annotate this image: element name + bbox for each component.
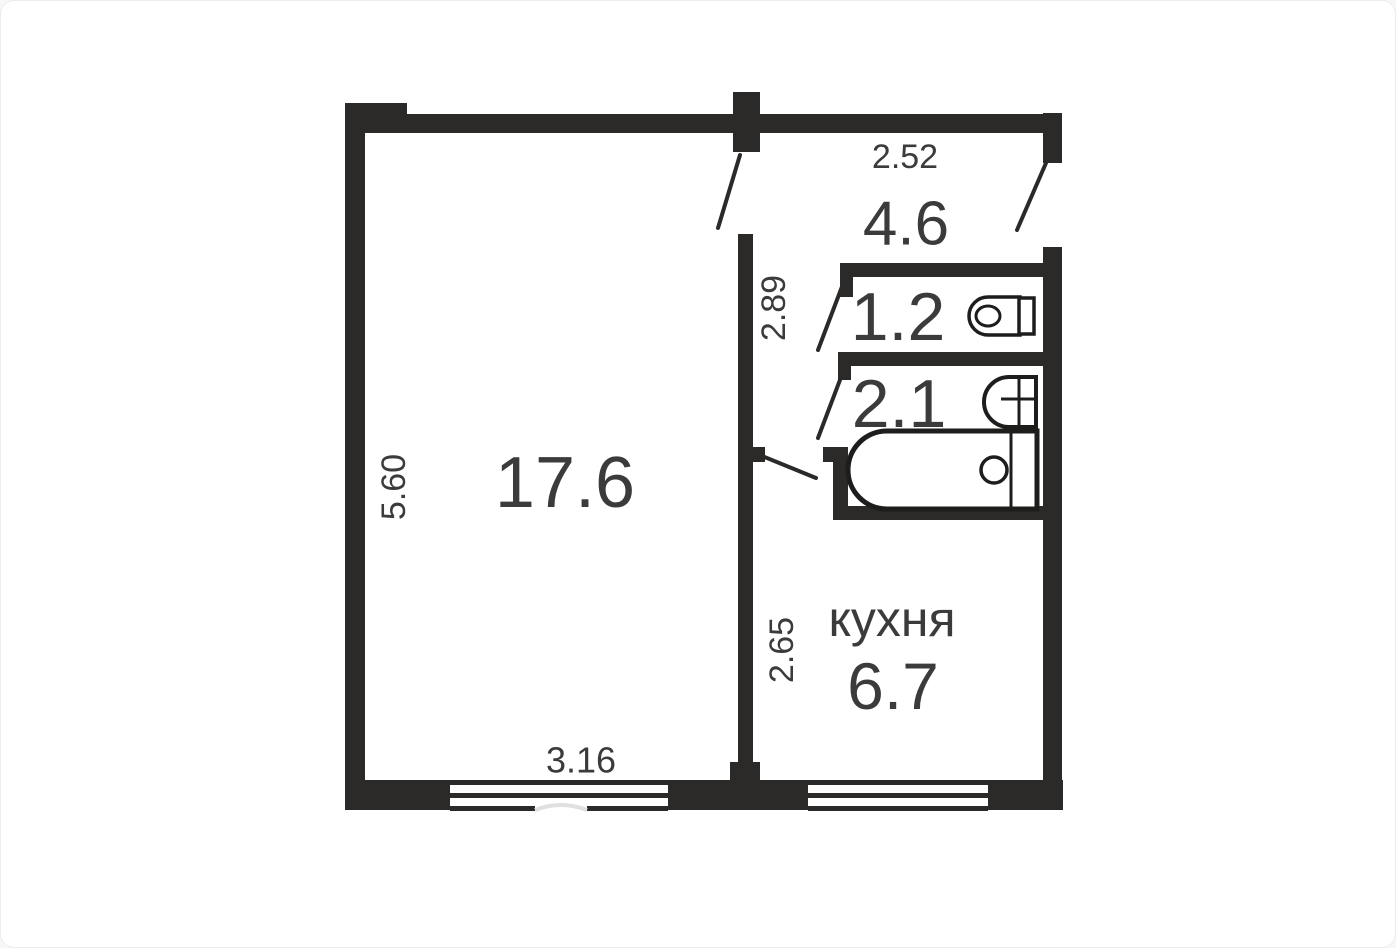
door-swing-icon-living	[718, 155, 740, 228]
window-line-inner-right	[587, 806, 668, 811]
wc-area-label: 1.2	[851, 279, 946, 355]
door-swing-icon-wc	[818, 284, 843, 350]
living-room-area-label: 17.6	[495, 443, 635, 523]
door-swing-icon-entrance	[1017, 163, 1046, 230]
sink-icon	[984, 377, 1036, 427]
window-living-room	[450, 780, 668, 811]
wall-right-above-entrance	[1043, 113, 1062, 163]
wall-wc-top	[840, 263, 1043, 277]
toilet-icon	[969, 297, 1034, 335]
wall-middle-top-stub	[733, 92, 760, 152]
dim-hall-depth: 2.89	[755, 275, 793, 341]
window-line-middle	[808, 793, 988, 798]
window-line-outer	[808, 780, 988, 785]
sink-basin	[984, 377, 1036, 427]
bathtub-drain	[981, 457, 1007, 483]
wall-right	[1043, 247, 1062, 810]
window-line-inner-left	[450, 806, 535, 811]
door-swing-icon-kitchen	[762, 456, 816, 478]
dim-living-depth: 5.60	[375, 454, 413, 520]
hall-area-label: 4.6	[863, 190, 949, 259]
wall-left	[345, 103, 365, 810]
kitchen-area-label: 6.7	[847, 649, 939, 723]
window-line-inner	[808, 806, 988, 811]
dim-living-width: 3.16	[546, 740, 616, 781]
wall-top	[365, 114, 1047, 133]
wall-bath-left-stub	[823, 447, 848, 462]
bathtub-icon	[848, 431, 1037, 509]
dim-hall-width: 2.52	[872, 138, 938, 176]
bath-area-label: 2.1	[852, 366, 947, 442]
door-swing-icon-bath	[818, 372, 843, 438]
dim-kitchen-depth: 2.65	[763, 617, 801, 683]
floor-plan-drawing: 17.6 4.6 1.2 2.1 кухня 6.7 2.52 3.16 5.6…	[0, 0, 1396, 948]
toilet-tank	[1019, 298, 1034, 334]
window-kitchen	[808, 780, 988, 811]
floor-plan-canvas: 17.6 4.6 1.2 2.1 кухня 6.7 2.52 3.16 5.6…	[0, 0, 1396, 948]
wall-middle-foot	[730, 762, 760, 782]
window-line-outer	[450, 780, 668, 785]
wall-middle	[738, 234, 753, 780]
window-line-middle	[450, 793, 668, 798]
toilet-seat	[976, 306, 1000, 326]
kitchen-name-label: кухня	[828, 591, 955, 647]
